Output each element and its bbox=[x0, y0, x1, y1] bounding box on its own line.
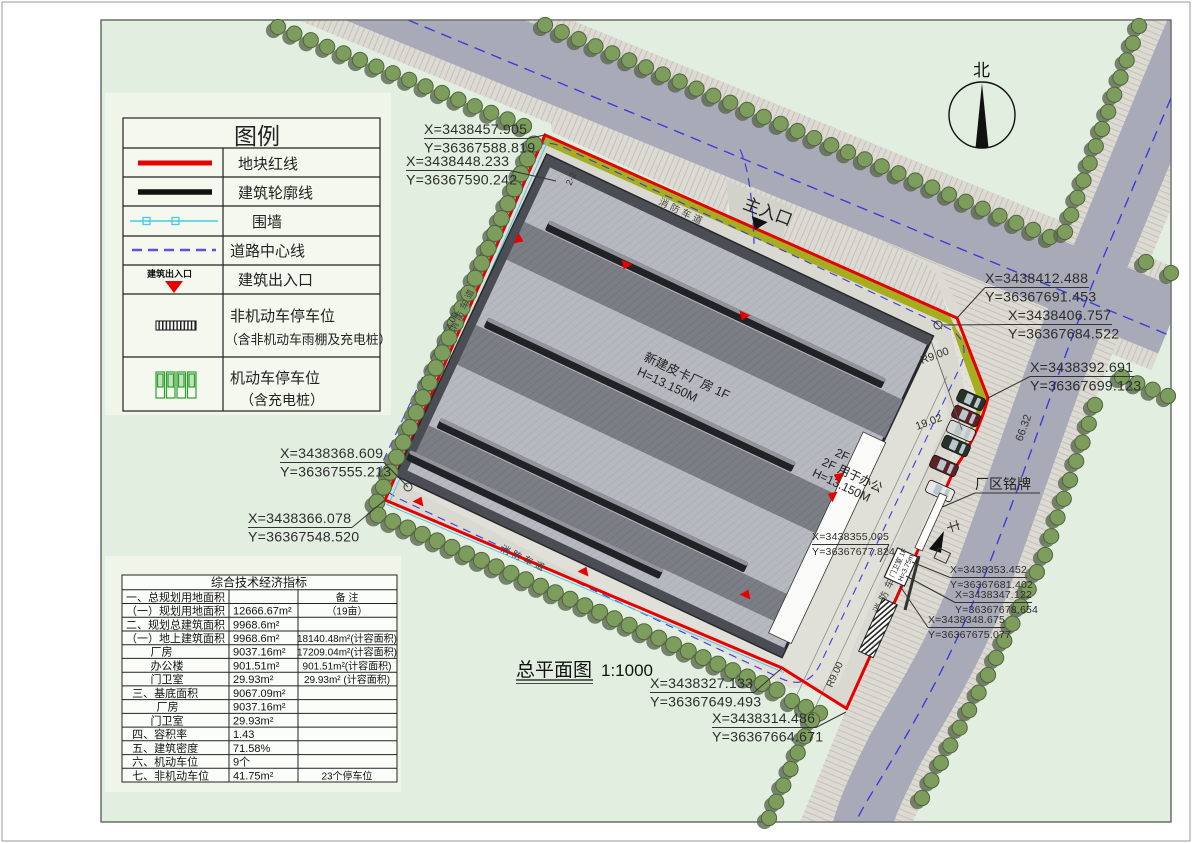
svg-text:Y=36367691.453: Y=36367691.453 bbox=[985, 290, 1096, 306]
svg-text:29.93m² (计容面积): 29.93m² (计容面积) bbox=[304, 673, 390, 686]
svg-text:41.75m²: 41.75m² bbox=[233, 770, 274, 782]
svg-text:X=3438406.757: X=3438406.757 bbox=[1008, 308, 1111, 324]
svg-text:X=3438353.452: X=3438353.452 bbox=[950, 564, 1027, 576]
svg-text:23个停车位: 23个停车位 bbox=[321, 769, 372, 782]
svg-text:三、基底面积: 三、基底面积 bbox=[126, 686, 198, 700]
svg-text:五、建筑密度: 五、建筑密度 bbox=[126, 741, 198, 755]
svg-text:Y=36367590.242: Y=36367590.242 bbox=[406, 173, 517, 189]
svg-text:X=3438457.905: X=3438457.905 bbox=[424, 122, 527, 138]
svg-text:9037.16m²: 9037.16m² bbox=[233, 702, 286, 714]
svg-text:29.93m²: 29.93m² bbox=[233, 674, 274, 686]
svg-text:北: 北 bbox=[973, 61, 990, 80]
svg-text:901.51m²(计容面积): 901.51m²(计容面积) bbox=[303, 659, 392, 672]
svg-text:门卫室: 门卫室 bbox=[126, 713, 183, 727]
svg-text:9037.16m²: 9037.16m² bbox=[233, 647, 286, 659]
svg-text:Y=36367555.213: Y=36367555.213 bbox=[280, 465, 391, 481]
svg-text:围墙: 围墙 bbox=[252, 214, 282, 231]
svg-text:X=3438347.122: X=3438347.122 bbox=[955, 589, 1032, 601]
svg-text:17209.04m²(计容面积): 17209.04m²(计容面积) bbox=[297, 646, 397, 659]
svg-text:七、非机动车位: 七、非机动车位 bbox=[126, 768, 209, 782]
svg-text:备 注: 备 注 bbox=[336, 591, 359, 604]
svg-text:厂区铭牌: 厂区铭牌 bbox=[975, 476, 1031, 492]
svg-text:办公楼: 办公楼 bbox=[126, 658, 183, 672]
svg-text:9968.6m²: 9968.6m² bbox=[233, 619, 280, 631]
svg-text:X=3438412.488: X=3438412.488 bbox=[985, 271, 1088, 287]
svg-text:四、容积率: 四、容积率 bbox=[126, 727, 187, 741]
svg-text:道路中心线: 道路中心线 bbox=[230, 243, 305, 260]
svg-text:X=3438448.233: X=3438448.233 bbox=[406, 154, 509, 170]
svg-text:建筑出入口: 建筑出入口 bbox=[147, 268, 192, 279]
svg-text:X=3438327.133: X=3438327.133 bbox=[650, 676, 753, 692]
svg-text:机动车停车位: 机动车停车位 bbox=[230, 370, 320, 387]
svg-text:X=3438355.005: X=3438355.005 bbox=[812, 531, 889, 543]
svg-text:1.43: 1.43 bbox=[233, 729, 254, 741]
svg-text:（一）规划用地面积: （一）规划用地面积 bbox=[126, 604, 225, 618]
svg-text:9968.6m²: 9968.6m² bbox=[233, 633, 280, 645]
svg-text:（含非机动车雨棚及充电桩）: （含非机动车雨棚及充电桩） bbox=[225, 332, 391, 347]
svg-text:厂房: 厂房 bbox=[126, 646, 172, 659]
svg-text:9个: 9个 bbox=[233, 756, 250, 769]
svg-text:六、机动车位: 六、机动车位 bbox=[126, 755, 198, 769]
svg-text:12666.67m²: 12666.67m² bbox=[233, 606, 292, 618]
svg-text:18140.48m²(计容面积): 18140.48m²(计容面积) bbox=[297, 632, 397, 645]
svg-text:Y=36367548.520: Y=36367548.520 bbox=[248, 530, 359, 546]
svg-text:X=3438314.486: X=3438314.486 bbox=[712, 711, 815, 727]
svg-text:综合技术经济指标: 综合技术经济指标 bbox=[211, 575, 307, 590]
svg-text:Y=36367675.077: Y=36367675.077 bbox=[928, 629, 1011, 641]
svg-text:X=3438366.078: X=3438366.078 bbox=[248, 511, 351, 527]
svg-text:901.51m²: 901.51m² bbox=[233, 660, 280, 672]
svg-text:X=3438392.691: X=3438392.691 bbox=[1030, 360, 1133, 376]
svg-text:29.93m²: 29.93m² bbox=[233, 715, 274, 727]
svg-text:X=3438368.609: X=3438368.609 bbox=[280, 446, 383, 462]
svg-text:Y=36367649.493: Y=36367649.493 bbox=[650, 695, 761, 711]
svg-text:一、总规划用地面积: 一、总规划用地面积 bbox=[126, 590, 225, 604]
svg-text:建筑出入口: 建筑出入口 bbox=[238, 272, 313, 289]
svg-text:1:1000: 1:1000 bbox=[601, 661, 653, 680]
svg-text:厂房: 厂房 bbox=[126, 701, 179, 714]
svg-text:二、规划总建筑面积: 二、规划总建筑面积 bbox=[126, 617, 225, 631]
svg-text:门卫室: 门卫室 bbox=[126, 672, 183, 686]
svg-text:总平面图: 总平面图 bbox=[516, 659, 592, 681]
svg-text:（一）地上建筑面积: （一）地上建筑面积 bbox=[126, 631, 225, 645]
svg-text:非机动车停车位: 非机动车停车位 bbox=[230, 308, 335, 325]
svg-text:建筑轮廓线: 建筑轮廓线 bbox=[238, 185, 313, 202]
svg-text:Y=36367699.123: Y=36367699.123 bbox=[1030, 379, 1141, 395]
svg-text:（含充电桩）: （含充电桩） bbox=[240, 392, 324, 408]
svg-text:9067.09m²: 9067.09m² bbox=[233, 688, 286, 700]
svg-text:Y=36367664.671: Y=36367664.671 bbox=[712, 730, 823, 746]
svg-text:（19亩）: （19亩） bbox=[326, 605, 367, 618]
svg-text:X=3438348.675: X=3438348.675 bbox=[928, 614, 1005, 626]
svg-text:图例: 图例 bbox=[234, 123, 280, 149]
svg-text:Y=36367684.522: Y=36367684.522 bbox=[1008, 327, 1119, 343]
svg-text:地块红线: 地块红线 bbox=[238, 156, 298, 173]
svg-text:71.58%: 71.58% bbox=[233, 743, 271, 755]
